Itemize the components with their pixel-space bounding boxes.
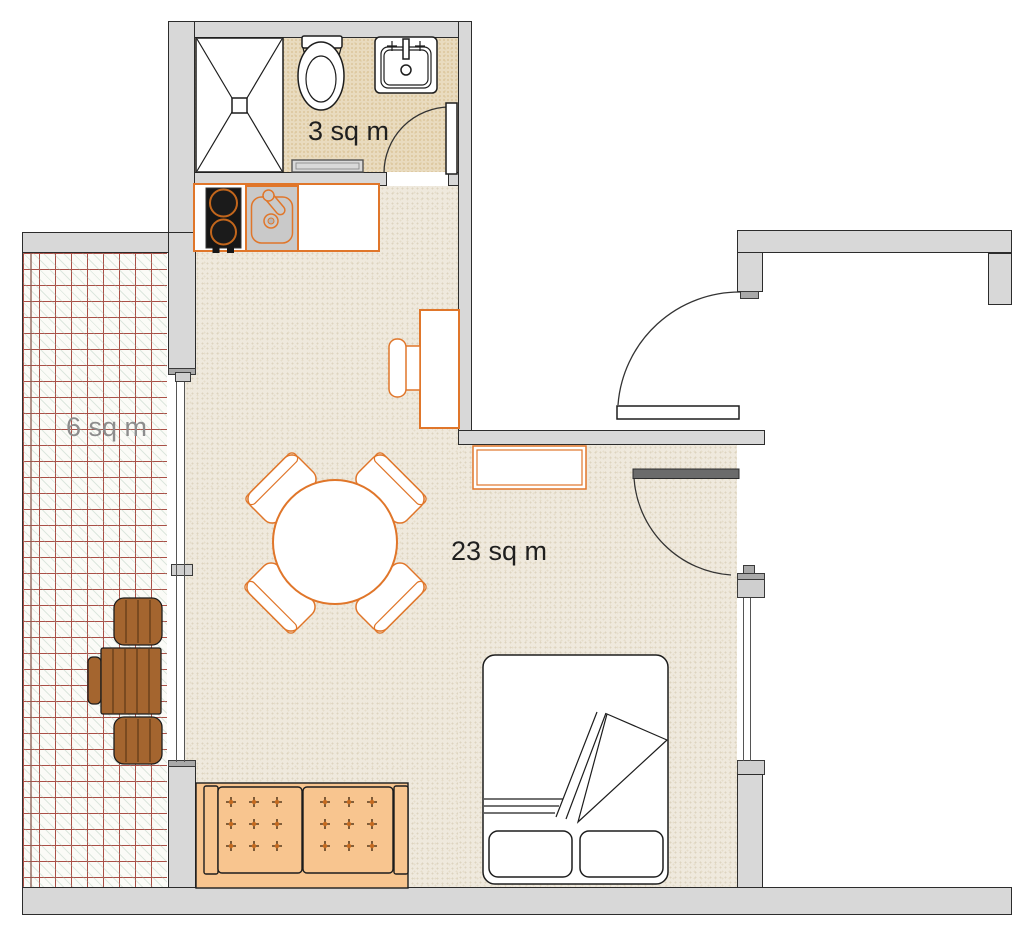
balcony-floor [22, 253, 167, 887]
floor-plan: 3 sq m 23 sq m 6 sq m [0, 0, 1024, 940]
left-window-jamb-top [175, 372, 191, 382]
right-window-jamb-bottom [737, 760, 765, 775]
wall-left-upper [168, 21, 195, 233]
wall-top-bathroom [168, 21, 472, 38]
wall-right-lower [737, 774, 763, 888]
wall-entry-left-jamb [740, 291, 759, 299]
right-window [743, 598, 751, 761]
wall-left-lower [168, 765, 196, 888]
balcony-window [176, 382, 185, 762]
wall-bathroom-bottom [194, 172, 387, 186]
right-window-jamb-top-cap [737, 573, 765, 580]
wall-main-top-right [458, 430, 765, 445]
balcony-railing-line [30, 253, 32, 887]
main-room-floor-right [458, 445, 737, 887]
wall-bottom [22, 887, 1012, 915]
entry-door [617, 292, 741, 419]
wall-entry-top [737, 230, 1012, 253]
wall-bathroom-right [458, 21, 472, 432]
bathroom-area-label: 3 sq m [308, 116, 389, 147]
wall-entry-right-stub [988, 253, 1012, 305]
main-room-floor-left [185, 186, 458, 887]
bathroom-floor [194, 38, 458, 172]
balcony-area-label: 6 sq m [66, 412, 147, 443]
wall-left-mid [168, 232, 196, 374]
wall-balcony-top [22, 232, 170, 253]
main-room-area-label: 23 sq m [451, 536, 547, 567]
